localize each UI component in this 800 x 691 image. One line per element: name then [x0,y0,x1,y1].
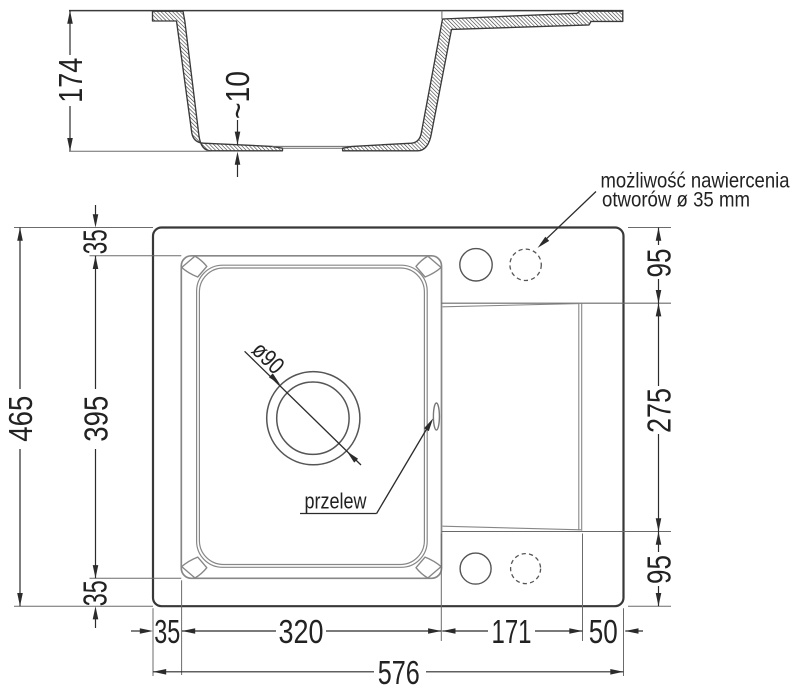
svg-text:50: 50 [589,613,618,650]
svg-text:320: 320 [279,613,324,650]
svg-text:395: 395 [78,396,115,442]
svg-text:465: 465 [2,396,39,442]
svg-text:171: 171 [492,613,532,650]
svg-text:35: 35 [77,580,114,606]
svg-text:przelew: przelew [305,489,367,514]
svg-text:~10: ~10 [219,71,256,119]
svg-text:95: 95 [640,249,677,278]
svg-text:otworów ø 35 mm: otworów ø 35 mm [602,189,750,212]
svg-text:174: 174 [52,58,89,103]
svg-text:95: 95 [640,555,677,584]
svg-text:576: 576 [378,654,420,691]
svg-text:35: 35 [77,229,114,254]
svg-text:35: 35 [154,613,180,650]
svg-text:275: 275 [640,388,677,433]
